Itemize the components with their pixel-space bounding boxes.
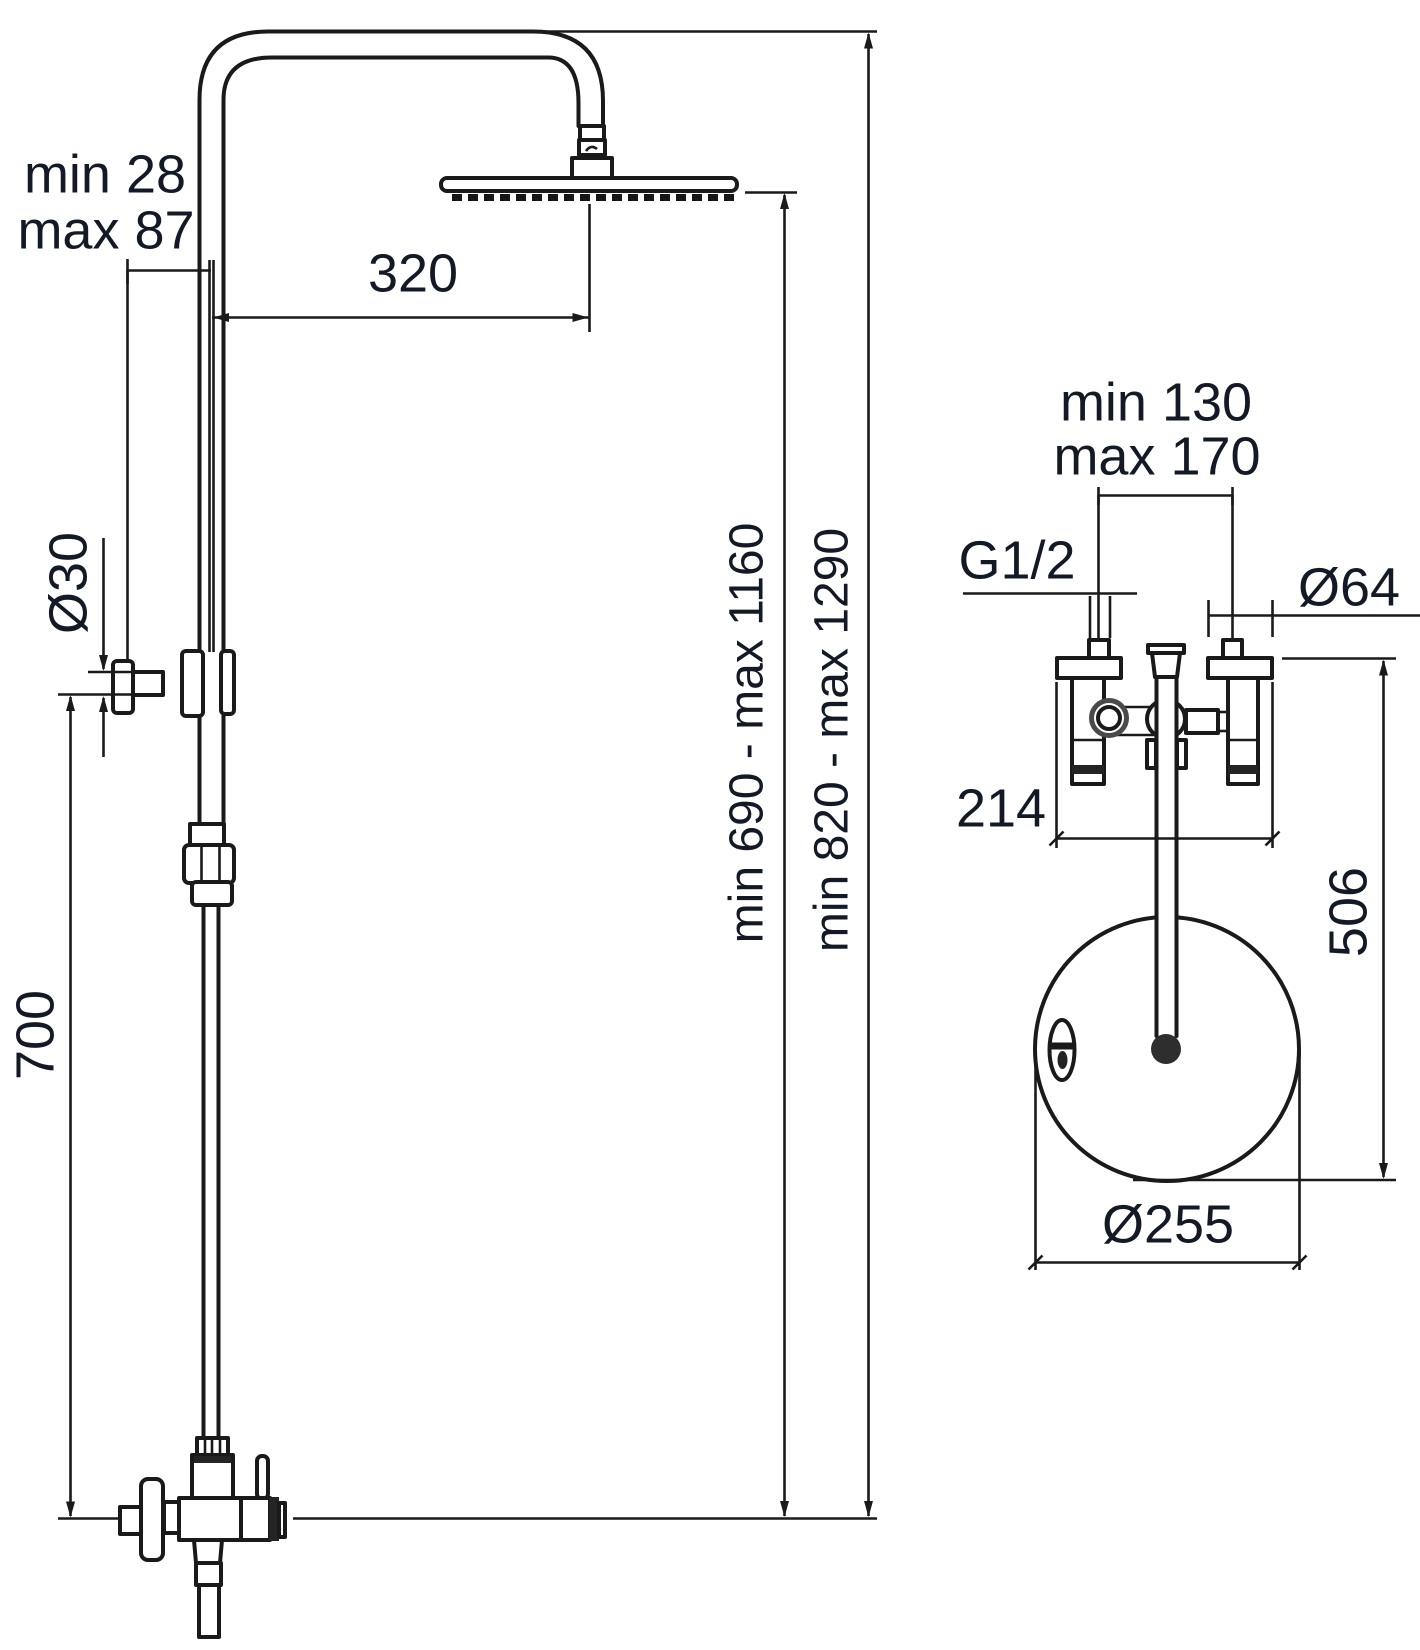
right-union-seal: [1228, 765, 1258, 774]
right-union-stub: [1223, 640, 1242, 658]
label-depth: 506: [1318, 867, 1378, 957]
valve-right-body: [241, 1498, 270, 1540]
pipe-top-neck: [1152, 653, 1180, 677]
body-block-right: [1186, 710, 1218, 733]
riser-and-arch: [200, 32, 604, 826]
pipe-tab-left: [1147, 740, 1156, 768]
bracket-clamp-right: [221, 651, 234, 714]
valve-outlet-stub: [199, 1585, 219, 1637]
label-wall-min: min 28: [24, 144, 186, 204]
overhead-shower: [441, 126, 737, 198]
label-reach: 320: [368, 243, 458, 303]
valve-left-hex: [164, 1502, 179, 1533]
right-union-flange: [1208, 658, 1272, 678]
head-height-arrow-up: [780, 193, 789, 209]
label-wall-max: max 87: [17, 200, 194, 260]
holder-dia-arrow-up: [99, 696, 108, 712]
label-union-dia: Ø64: [1298, 557, 1400, 617]
depth-arrow-down: [1379, 1163, 1388, 1179]
coupling-collar: [190, 824, 224, 846]
bracket-wall-flange: [113, 661, 133, 713]
coupling-nut: [184, 845, 234, 883]
head-height-arrow-down: [780, 1501, 789, 1517]
arch-inner-line: [224, 58, 579, 826]
pipe-hub: [1151, 1034, 1181, 1064]
holder-height-arrow-down: [66, 1502, 75, 1518]
diverter-pin: [1058, 1051, 1068, 1069]
shower-column-drawing: min 28 max 87 320 Ø30 700: [0, 0, 1420, 1650]
wall-bracket: [113, 651, 234, 716]
coupling-lower-collar: [192, 882, 232, 905]
label-body-width: 214: [956, 778, 1046, 838]
technical-drawing-page: min 28 max 87 320 Ø30 700: [0, 0, 1420, 1650]
telescopic-coupling: [184, 824, 234, 1439]
front-dimensions: min 28 max 87 320 Ø30 700: [5, 32, 877, 1519]
reach-arrow-left: [213, 313, 229, 322]
head-mount-cap: [572, 158, 612, 179]
pipe-tab-right: [1177, 740, 1186, 768]
mixer-valve: [120, 1438, 285, 1637]
arch-outer-line: [200, 32, 604, 826]
head-plate: [441, 178, 737, 191]
label-holder-dia: Ø30: [38, 532, 98, 634]
reach-arrow-right: [573, 313, 589, 322]
valve-lever: [257, 1456, 268, 1499]
bracket-clamp-left: [182, 651, 203, 716]
label-spacing-max: max 170: [1053, 426, 1260, 486]
holder-dia-arrow-down: [99, 655, 108, 671]
valve-end-cap: [279, 1503, 285, 1537]
front-view: min 28 max 87 320 Ø30 700: [5, 32, 877, 1638]
holder-height-arrow-up: [66, 695, 75, 711]
valve-outlet-mid: [196, 1563, 221, 1585]
down-pipe-fill: [1158, 677, 1175, 1036]
label-plate-dia: Ø255: [1102, 1194, 1234, 1254]
total-height-arrow-up: [864, 33, 873, 49]
valve-outlet-taper: [194, 1540, 222, 1563]
label-spacing-min: min 130: [1060, 372, 1252, 432]
valve-upper-seal-band: [194, 1456, 231, 1463]
top-view: min 130 max 170 G1/2 Ø64 214: [956, 372, 1420, 1270]
label-thread: G1/2: [958, 530, 1075, 590]
depth-arrow-up: [1379, 660, 1388, 676]
label-head-height: min 690 - max 1160: [721, 523, 774, 944]
label-total-height: min 820 - max 1290: [806, 528, 859, 952]
label-holder-height: 700: [5, 990, 65, 1080]
bracket-arm: [133, 672, 163, 695]
valve-main-body: [179, 1498, 241, 1540]
valve-left-stub: [120, 1507, 141, 1534]
valve-knob-disc: [141, 1479, 163, 1560]
total-height-arrow-down: [864, 1501, 873, 1517]
left-union-seal: [1072, 765, 1104, 774]
left-union-flange: [1057, 658, 1121, 678]
left-union-stub: [1089, 640, 1109, 658]
head-union-nut-upper: [580, 126, 604, 140]
